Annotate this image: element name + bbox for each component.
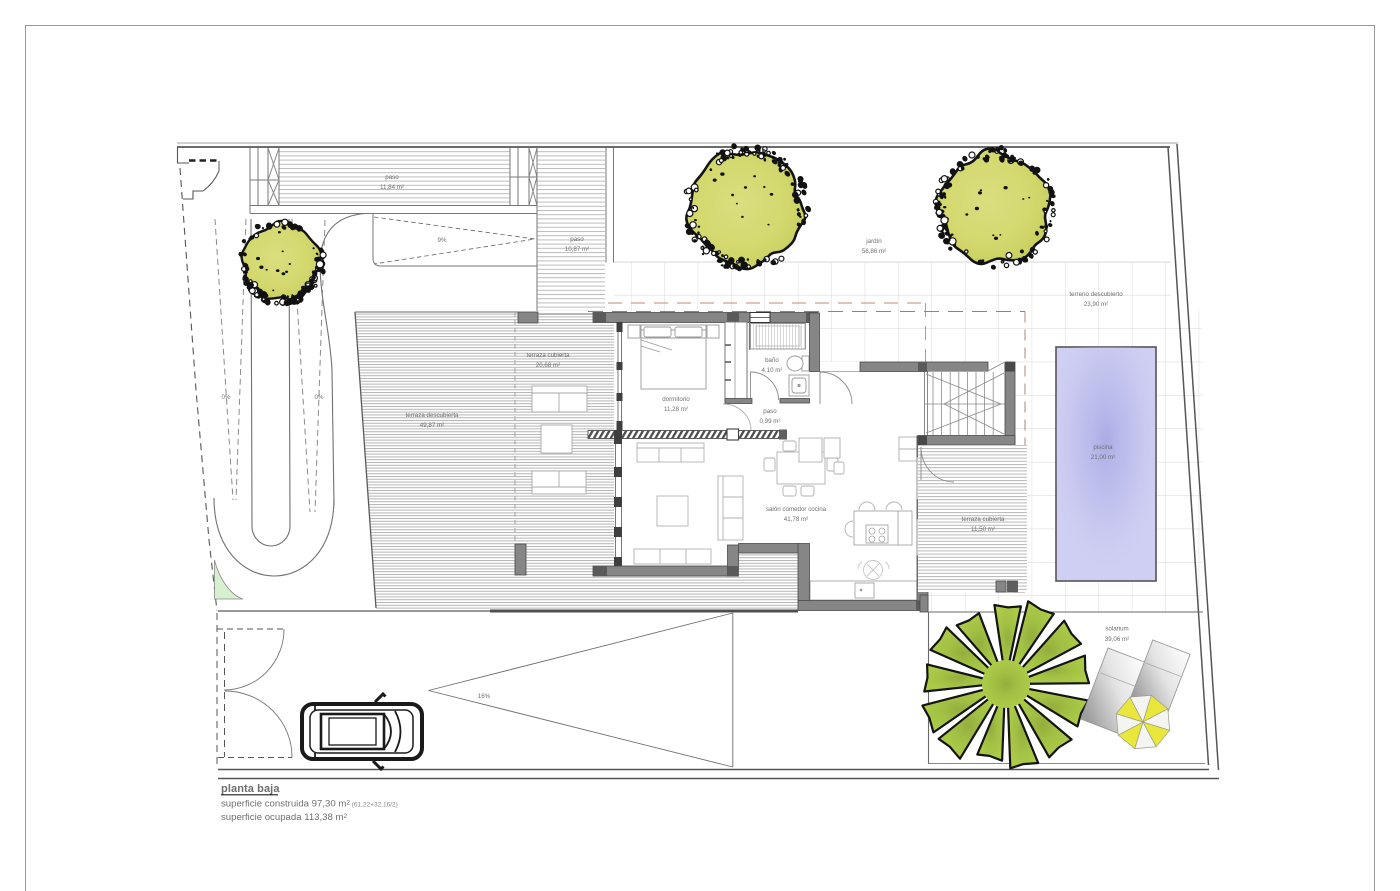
svg-text:21,00 m²: 21,00 m² bbox=[1091, 454, 1115, 461]
svg-text:56,86 m²: 56,86 m² bbox=[862, 248, 886, 255]
svg-text:dormitorio: dormitorio bbox=[662, 396, 690, 403]
svg-text:49,87 m²: 49,87 m² bbox=[420, 422, 444, 429]
svg-text:16%: 16% bbox=[478, 693, 491, 700]
svg-text:23,90 m²: 23,90 m² bbox=[1084, 301, 1108, 308]
svg-text:11,28 m²: 11,28 m² bbox=[664, 406, 688, 413]
svg-text:paso: paso bbox=[385, 174, 399, 181]
svg-text:salón comedor cocina: salón comedor cocina bbox=[766, 506, 827, 513]
svg-text:10,87 m²: 10,87 m² bbox=[565, 246, 589, 253]
svg-text:20,68 m²: 20,68 m² bbox=[536, 362, 560, 369]
svg-text:terreno descubierto: terreno descubierto bbox=[1069, 291, 1123, 298]
svg-text:0%: 0% bbox=[315, 394, 324, 401]
svg-text:solarium: solarium bbox=[1105, 626, 1128, 633]
svg-text:planta baja: planta baja bbox=[221, 783, 280, 795]
svg-text:paso: paso bbox=[763, 408, 777, 415]
svg-text:jardín: jardín bbox=[865, 238, 882, 245]
svg-text:9%: 9% bbox=[438, 237, 447, 244]
svg-text:41,78 m²: 41,78 m² bbox=[784, 516, 808, 523]
svg-text:0,99 m²: 0,99 m² bbox=[760, 418, 781, 425]
svg-text:11,84 m²: 11,84 m² bbox=[380, 184, 404, 191]
svg-text:superficie ocupada 113,38 m2: superficie ocupada 113,38 m2 bbox=[221, 812, 348, 823]
svg-text:0%: 0% bbox=[222, 394, 231, 401]
svg-text:paso: paso bbox=[570, 236, 584, 243]
svg-text:terraza descubierta: terraza descubierta bbox=[406, 412, 460, 419]
svg-text:terraza cubierta: terraza cubierta bbox=[527, 352, 571, 359]
svg-text:4,10 m²: 4,10 m² bbox=[762, 367, 783, 374]
svg-text:piscina: piscina bbox=[1093, 444, 1113, 451]
svg-text:terraza cubierta: terraza cubierta bbox=[962, 516, 1006, 523]
svg-text:11,50 m²: 11,50 m² bbox=[971, 526, 995, 533]
svg-text:39,06 m²: 39,06 m² bbox=[1105, 636, 1129, 643]
svg-text:baño: baño bbox=[765, 357, 779, 364]
